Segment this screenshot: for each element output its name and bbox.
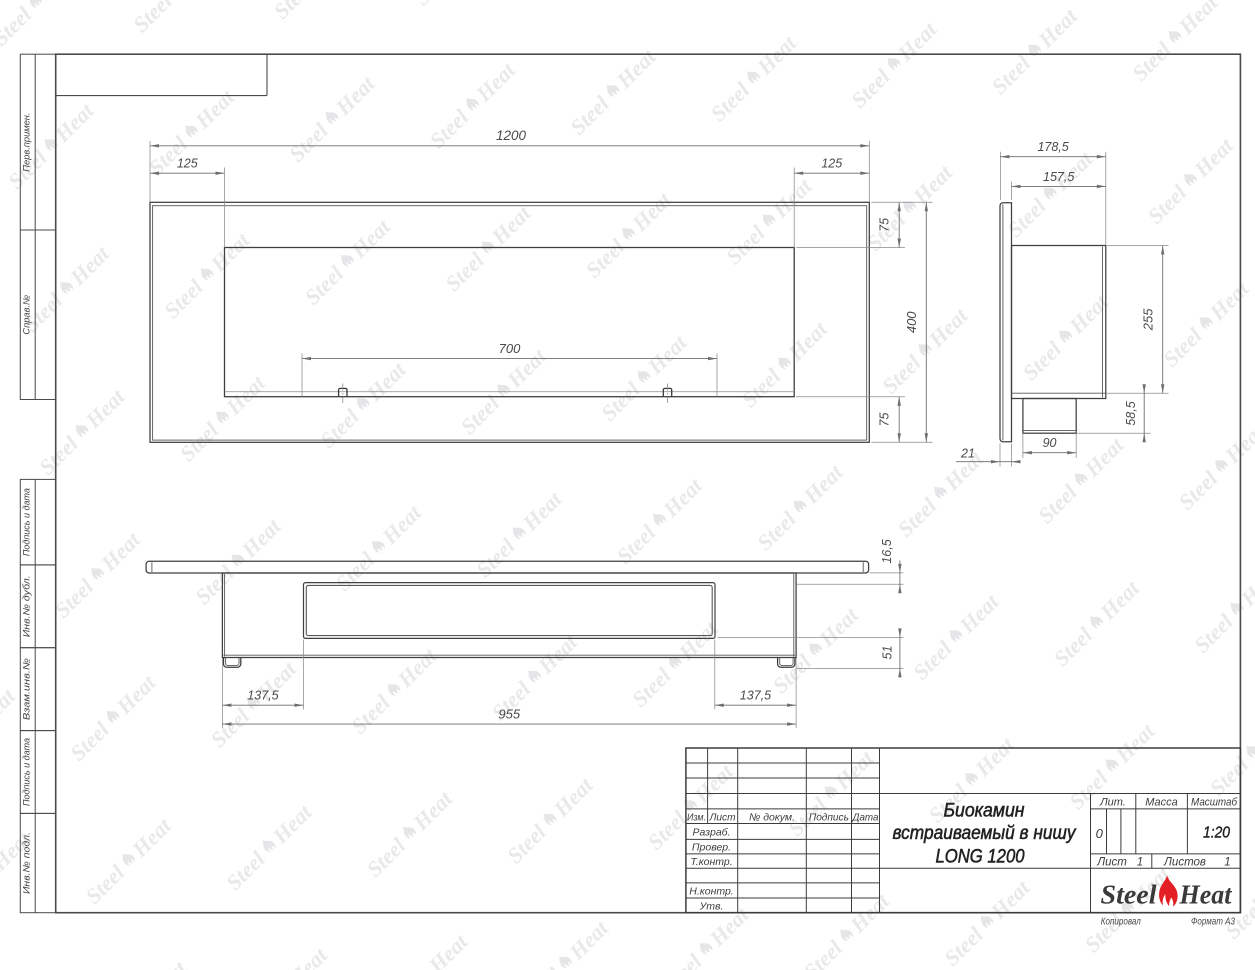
svg-text:16,5: 16,5 [880,539,894,563]
svg-text:Биокамин: Биокамин [944,801,1025,822]
svg-text:Дата: Дата [852,811,879,823]
svg-text:137,5: 137,5 [247,689,278,703]
svg-text:Н.контр.: Н.контр. [689,886,733,898]
svg-text:Лист: Лист [1096,856,1127,868]
svg-text:125: 125 [821,157,842,171]
svg-text:Справ.№: Справ.№ [22,295,32,335]
svg-text:137,5: 137,5 [740,689,771,703]
svg-text:Подпись и дата: Подпись и дата [22,488,32,556]
svg-text:1200: 1200 [496,128,527,143]
svg-text:встраиваемый в нишу: встраиваемый в нишу [893,823,1077,844]
svg-text:21: 21 [960,447,975,461]
svg-text:1: 1 [1137,856,1143,868]
svg-text:Листов: Листов [1163,856,1206,868]
svg-text:Формат А3: Формат А3 [1191,916,1235,927]
svg-text:Изм.: Изм. [687,811,706,823]
svg-text:1:20: 1:20 [1203,825,1230,842]
svg-text:400: 400 [904,311,919,333]
svg-text:1: 1 [1224,856,1230,868]
svg-text:0: 0 [1096,826,1104,841]
svg-text:178,5: 178,5 [1037,140,1068,154]
svg-text:51: 51 [881,646,895,660]
svg-text:Перв.примен.: Перв.примен. [22,112,32,171]
svg-text:Копировал: Копировал [1101,916,1141,927]
svg-text:Т.контр.: Т.контр. [690,856,732,868]
svg-text:Лист: Лист [709,811,736,823]
svg-text:90: 90 [1043,436,1057,450]
svg-text:Взам.инв.№: Взам.инв.№ [22,658,32,720]
svg-text:58,5: 58,5 [1124,401,1138,425]
svg-text:125: 125 [177,157,198,171]
svg-text:955: 955 [498,707,520,722]
svg-text:Разраб.: Разраб. [693,827,731,839]
svg-text:157,5: 157,5 [1043,170,1074,184]
svg-text:700: 700 [499,341,521,356]
svg-text:Heat: Heat [1179,880,1233,910]
svg-text:Подпись и дата: Подпись и дата [22,738,32,806]
svg-text:Лит.: Лит. [1099,796,1126,808]
svg-text:№ докум.: № докум. [749,811,795,823]
svg-text:Масса: Масса [1145,796,1178,808]
svg-text:75: 75 [878,218,892,232]
svg-text:LONG 1200: LONG 1200 [936,847,1025,868]
svg-text:Инв.№ дубл.: Инв.№ дубл. [22,575,32,637]
svg-text:Steel: Steel [1101,880,1158,910]
svg-text:255: 255 [1141,308,1156,331]
svg-text:75: 75 [878,413,892,427]
svg-text:Масштаб: Масштаб [1191,796,1238,808]
svg-text:Подпись: Подпись [809,811,849,823]
svg-text:Утв.: Утв. [699,900,724,912]
svg-text:Провер.: Провер. [692,841,731,853]
svg-text:Инв.№ подл.: Инв.№ подл. [22,832,32,894]
